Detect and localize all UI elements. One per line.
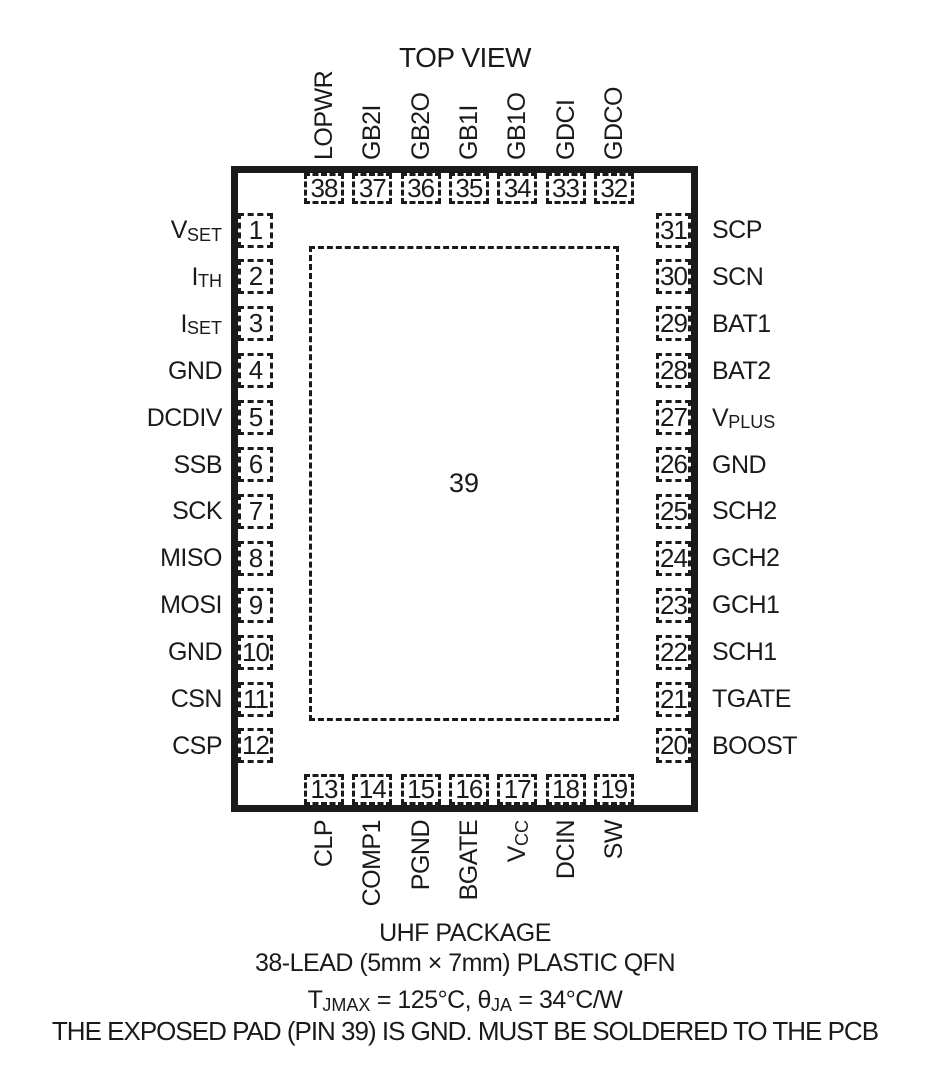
pin-box-15: 15: [401, 774, 441, 805]
pin-number: 9: [249, 590, 262, 621]
pin-box-28: 28: [656, 353, 691, 388]
pin-box-22: 22: [656, 635, 691, 670]
pin-box-1: 1: [238, 213, 273, 248]
pin-box-11: 11: [238, 682, 273, 717]
pin-number: 6: [249, 449, 262, 480]
package-name: UHF PACKAGE: [0, 919, 930, 948]
pin-number: 29: [660, 308, 687, 339]
pin-label-35: GB1I: [455, 30, 483, 160]
pin-number: 22: [660, 637, 687, 668]
pin-number: 30: [660, 261, 687, 292]
pin-label-31: SCP: [712, 215, 912, 245]
pin-box-2: 2: [238, 259, 273, 294]
pin-number: 23: [660, 590, 687, 621]
pin-number: 36: [407, 173, 434, 204]
pin-box-10: 10: [238, 635, 273, 670]
pin-box-23: 23: [656, 588, 691, 623]
pin-label-26: GND: [712, 450, 912, 480]
pin-label-5: DCDIV: [30, 403, 222, 433]
pin-box-34: 34: [497, 173, 537, 204]
pin-box-24: 24: [656, 541, 691, 576]
pin-number: 24: [660, 543, 687, 574]
pin-box-32: 32: [594, 173, 634, 204]
pin-number: 1: [249, 215, 262, 246]
pin-label-33: GDCI: [552, 30, 580, 160]
pin-number: 26: [660, 449, 687, 480]
pin-label-7: SCK: [30, 496, 222, 526]
pin-box-19: 19: [594, 774, 634, 805]
pin-box-25: 25: [656, 494, 691, 529]
pin-label-28: BAT2: [712, 356, 912, 386]
pin-box-4: 4: [238, 353, 273, 388]
pin-label-20: BOOST: [712, 731, 912, 761]
pin-number: 14: [359, 774, 386, 805]
pin-label-1: VSET: [30, 215, 222, 245]
pin-box-3: 3: [238, 306, 273, 341]
pin-label-23: GCH1: [712, 590, 912, 620]
pin-label-6: SSB: [30, 450, 222, 480]
pin-number: 37: [359, 173, 386, 204]
pin-label-34: GB1O: [503, 30, 531, 160]
pin-label-21: TGATE: [712, 684, 912, 714]
pin-box-30: 30: [656, 259, 691, 294]
pin-label-32: GDCO: [600, 30, 628, 160]
pin-label-27: VPLUS: [712, 403, 912, 433]
pin-box-36: 36: [401, 173, 441, 204]
pin-box-12: 12: [238, 728, 273, 763]
pin-box-13: 13: [304, 774, 344, 805]
pin-box-33: 33: [546, 173, 586, 204]
pin-label-11: CSN: [30, 684, 222, 714]
pin-label-4: GND: [30, 356, 222, 386]
pin-label-22: SCH1: [712, 637, 912, 667]
pin-number: 8: [249, 543, 262, 574]
pin-box-21: 21: [656, 682, 691, 717]
pin-number: 10: [242, 637, 269, 668]
pin-box-7: 7: [238, 494, 273, 529]
exposed-pad-note: THE EXPOSED PAD (PIN 39) IS GND. MUST BE…: [0, 1016, 930, 1047]
pin-box-5: 5: [238, 400, 273, 435]
pin-number: 20: [660, 730, 687, 761]
pin-box-8: 8: [238, 541, 273, 576]
pin-box-29: 29: [656, 306, 691, 341]
pinout-diagram: TOP VIEW 39 1234567891011123130292827262…: [0, 0, 930, 1075]
pin-label-36: GB2O: [407, 30, 435, 160]
pin-box-27: 27: [656, 400, 691, 435]
exposed-pad: 39: [309, 246, 619, 721]
pin-number: 32: [600, 173, 627, 204]
pin-label-30: SCN: [712, 262, 912, 292]
pin-label-25: SCH2: [712, 496, 912, 526]
pin-box-35: 35: [449, 173, 489, 204]
pin-number: 33: [552, 173, 579, 204]
exposed-pad-number: 39: [449, 468, 479, 499]
pin-number: 31: [660, 215, 687, 246]
pin-label-9: MOSI: [30, 590, 222, 620]
pin-box-6: 6: [238, 447, 273, 482]
pin-number: 35: [455, 173, 482, 204]
pin-number: 7: [249, 496, 262, 527]
pin-number: 16: [455, 774, 482, 805]
pin-label-29: BAT1: [712, 309, 912, 339]
pin-box-9: 9: [238, 588, 273, 623]
pin-number: 17: [504, 774, 531, 805]
pin-number: 12: [242, 730, 269, 761]
pin-number: 28: [660, 355, 687, 386]
pin-number: 19: [600, 774, 627, 805]
pin-number: 3: [249, 308, 262, 339]
pin-box-16: 16: [449, 774, 489, 805]
pin-number: 38: [311, 173, 338, 204]
thermal-spec: TJMAX = 125°C, θJA = 34°C/W: [0, 986, 930, 1015]
pin-label-2: ITH: [30, 262, 222, 292]
pin-label-3: ISET: [30, 309, 222, 339]
pin-label-38: LOPWR: [310, 30, 338, 160]
pin-number: 15: [407, 774, 434, 805]
pin-box-18: 18: [546, 774, 586, 805]
pin-number: 2: [249, 261, 262, 292]
pin-number: 4: [249, 355, 262, 386]
pin-number: 21: [660, 684, 687, 715]
pin-box-14: 14: [352, 774, 392, 805]
pin-label-37: GB2I: [358, 30, 386, 160]
pin-number: 34: [504, 173, 531, 204]
pin-box-26: 26: [656, 447, 691, 482]
package-description: 38-LEAD (5mm × 7mm) PLASTIC QFN: [0, 949, 930, 978]
pin-number: 27: [660, 402, 687, 433]
pin-label-12: CSP: [30, 731, 222, 761]
pin-number: 13: [311, 774, 338, 805]
pin-number: 5: [249, 402, 262, 433]
pin-label-8: MISO: [30, 543, 222, 573]
pin-box-20: 20: [656, 728, 691, 763]
pin-box-31: 31: [656, 213, 691, 248]
pin-box-17: 17: [497, 774, 537, 805]
pin-number: 18: [552, 774, 579, 805]
pin-label-10: GND: [30, 637, 222, 667]
pin-box-38: 38: [304, 173, 344, 204]
pin-box-37: 37: [352, 173, 392, 204]
pin-label-24: GCH2: [712, 543, 912, 573]
pin-number: 11: [243, 684, 268, 715]
pin-number: 25: [660, 496, 687, 527]
